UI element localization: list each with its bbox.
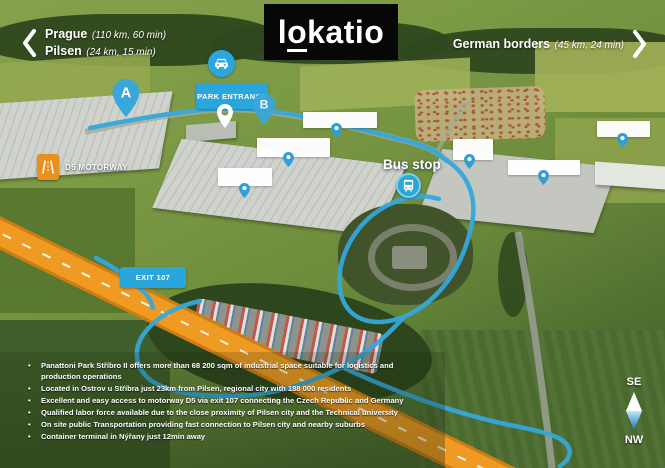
fact-item: Qualified labor force available due to t…: [26, 407, 418, 418]
destination-city: German borders: [453, 37, 550, 51]
bus-icon: [396, 173, 421, 198]
village-area: [414, 86, 546, 143]
exit-107-label: EXIT 107: [120, 267, 186, 288]
tenant-pin-icon: [464, 154, 475, 169]
aerial-map: Prague (110 km, 60 min) Pilsen (24 km, 1…: [0, 0, 665, 468]
destination-city: Pilsen: [45, 44, 82, 58]
compass-se-label: SE: [612, 376, 656, 388]
fact-item: On site public Transportation providing …: [26, 419, 418, 430]
nav-west: Prague (110 km, 60 min) Pilsen (24 km, 1…: [22, 26, 166, 60]
logo-text: katio: [307, 14, 384, 51]
marker-a-letter: A: [121, 85, 132, 101]
fact-item: Container terminal in Nýřany just 12min …: [26, 431, 418, 442]
tenant-pin-icon: [617, 133, 628, 148]
destination-detail: (110 km, 60 min): [92, 30, 166, 41]
tenant-pin-icon: [331, 123, 342, 138]
tenant-pin-icon: [538, 170, 549, 185]
logo-text: l: [278, 14, 287, 51]
destination-detail: (45 km, 24 min): [555, 40, 624, 51]
nav-east: German borders (45 km, 24 min): [453, 30, 647, 58]
logo-text-underlined-o: o: [287, 16, 307, 52]
chevron-right-icon: [632, 30, 647, 58]
tenant-pin-icon: [283, 152, 294, 167]
chevron-left-icon: [22, 29, 37, 57]
compass: SE NW: [612, 376, 656, 446]
nav-destination: Pilsen (24 km, 15 min): [45, 43, 166, 60]
marker-pin-b: B: [252, 93, 276, 125]
car-icon: [208, 50, 235, 77]
destination-detail: (24 km, 15 min): [86, 47, 155, 58]
tree-line: [498, 232, 528, 317]
motorway-label: D5 MOTORWAY: [65, 163, 128, 172]
tenant-pin-icon: [239, 183, 250, 198]
fact-item: Located in Ostrov u Stříbra just 23km fr…: [26, 383, 418, 394]
fact-item: Panattoni Park Stříbro II offers more th…: [26, 360, 418, 382]
lokatio-logo: lokatio: [264, 4, 398, 60]
marker-pin-a: A: [112, 79, 140, 117]
destination-city: Prague: [45, 27, 87, 41]
bus-stop-label: Bus stop: [383, 157, 441, 172]
nav-destination: Prague (110 km, 60 min): [45, 26, 166, 43]
motorway-sign-icon: [37, 154, 59, 180]
park-facts-list: Panattoni Park Stříbro II offers more th…: [26, 360, 418, 443]
marker-b-letter: B: [260, 98, 269, 112]
small-building: [595, 162, 665, 190]
park-entrance-pin-icon: [217, 104, 233, 128]
nav-destination: German borders (45 km, 24 min): [453, 36, 624, 53]
office-complex: [338, 204, 473, 305]
fact-item: Excellent and easy access to motorway D5…: [26, 395, 418, 406]
compass-nw-label: NW: [612, 434, 656, 446]
compass-arrow-icon: [624, 391, 644, 431]
